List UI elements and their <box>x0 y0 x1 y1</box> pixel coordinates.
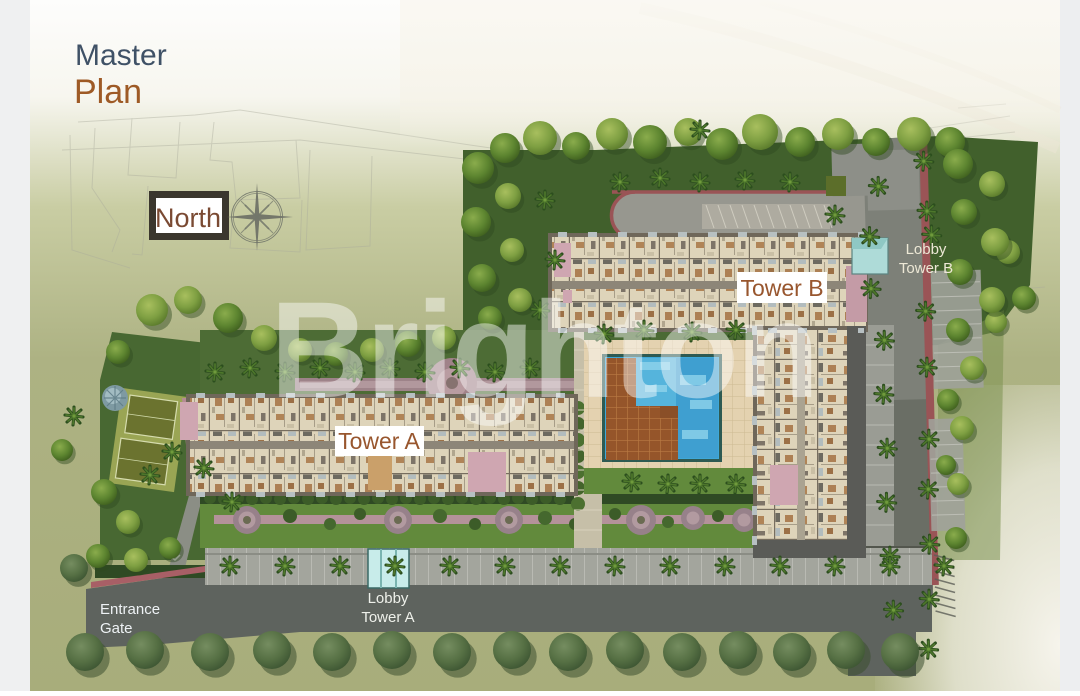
svg-text:Entrance: Entrance <box>100 601 160 618</box>
svg-text:Tower B: Tower B <box>899 260 953 277</box>
svg-text:Lobby: Lobby <box>906 241 947 258</box>
svg-text:Master: Master <box>75 39 167 72</box>
svg-text:Lobby: Lobby <box>368 590 409 607</box>
svg-text:Tower A: Tower A <box>361 609 414 626</box>
svg-text:Plan: Plan <box>74 73 142 111</box>
svg-text:Tower A: Tower A <box>338 428 420 454</box>
svg-text:Gate: Gate <box>100 620 133 637</box>
svg-text:Brighton: Brighton <box>270 274 817 427</box>
svg-text:Tower B: Tower B <box>740 275 823 301</box>
svg-text:North: North <box>155 203 221 233</box>
